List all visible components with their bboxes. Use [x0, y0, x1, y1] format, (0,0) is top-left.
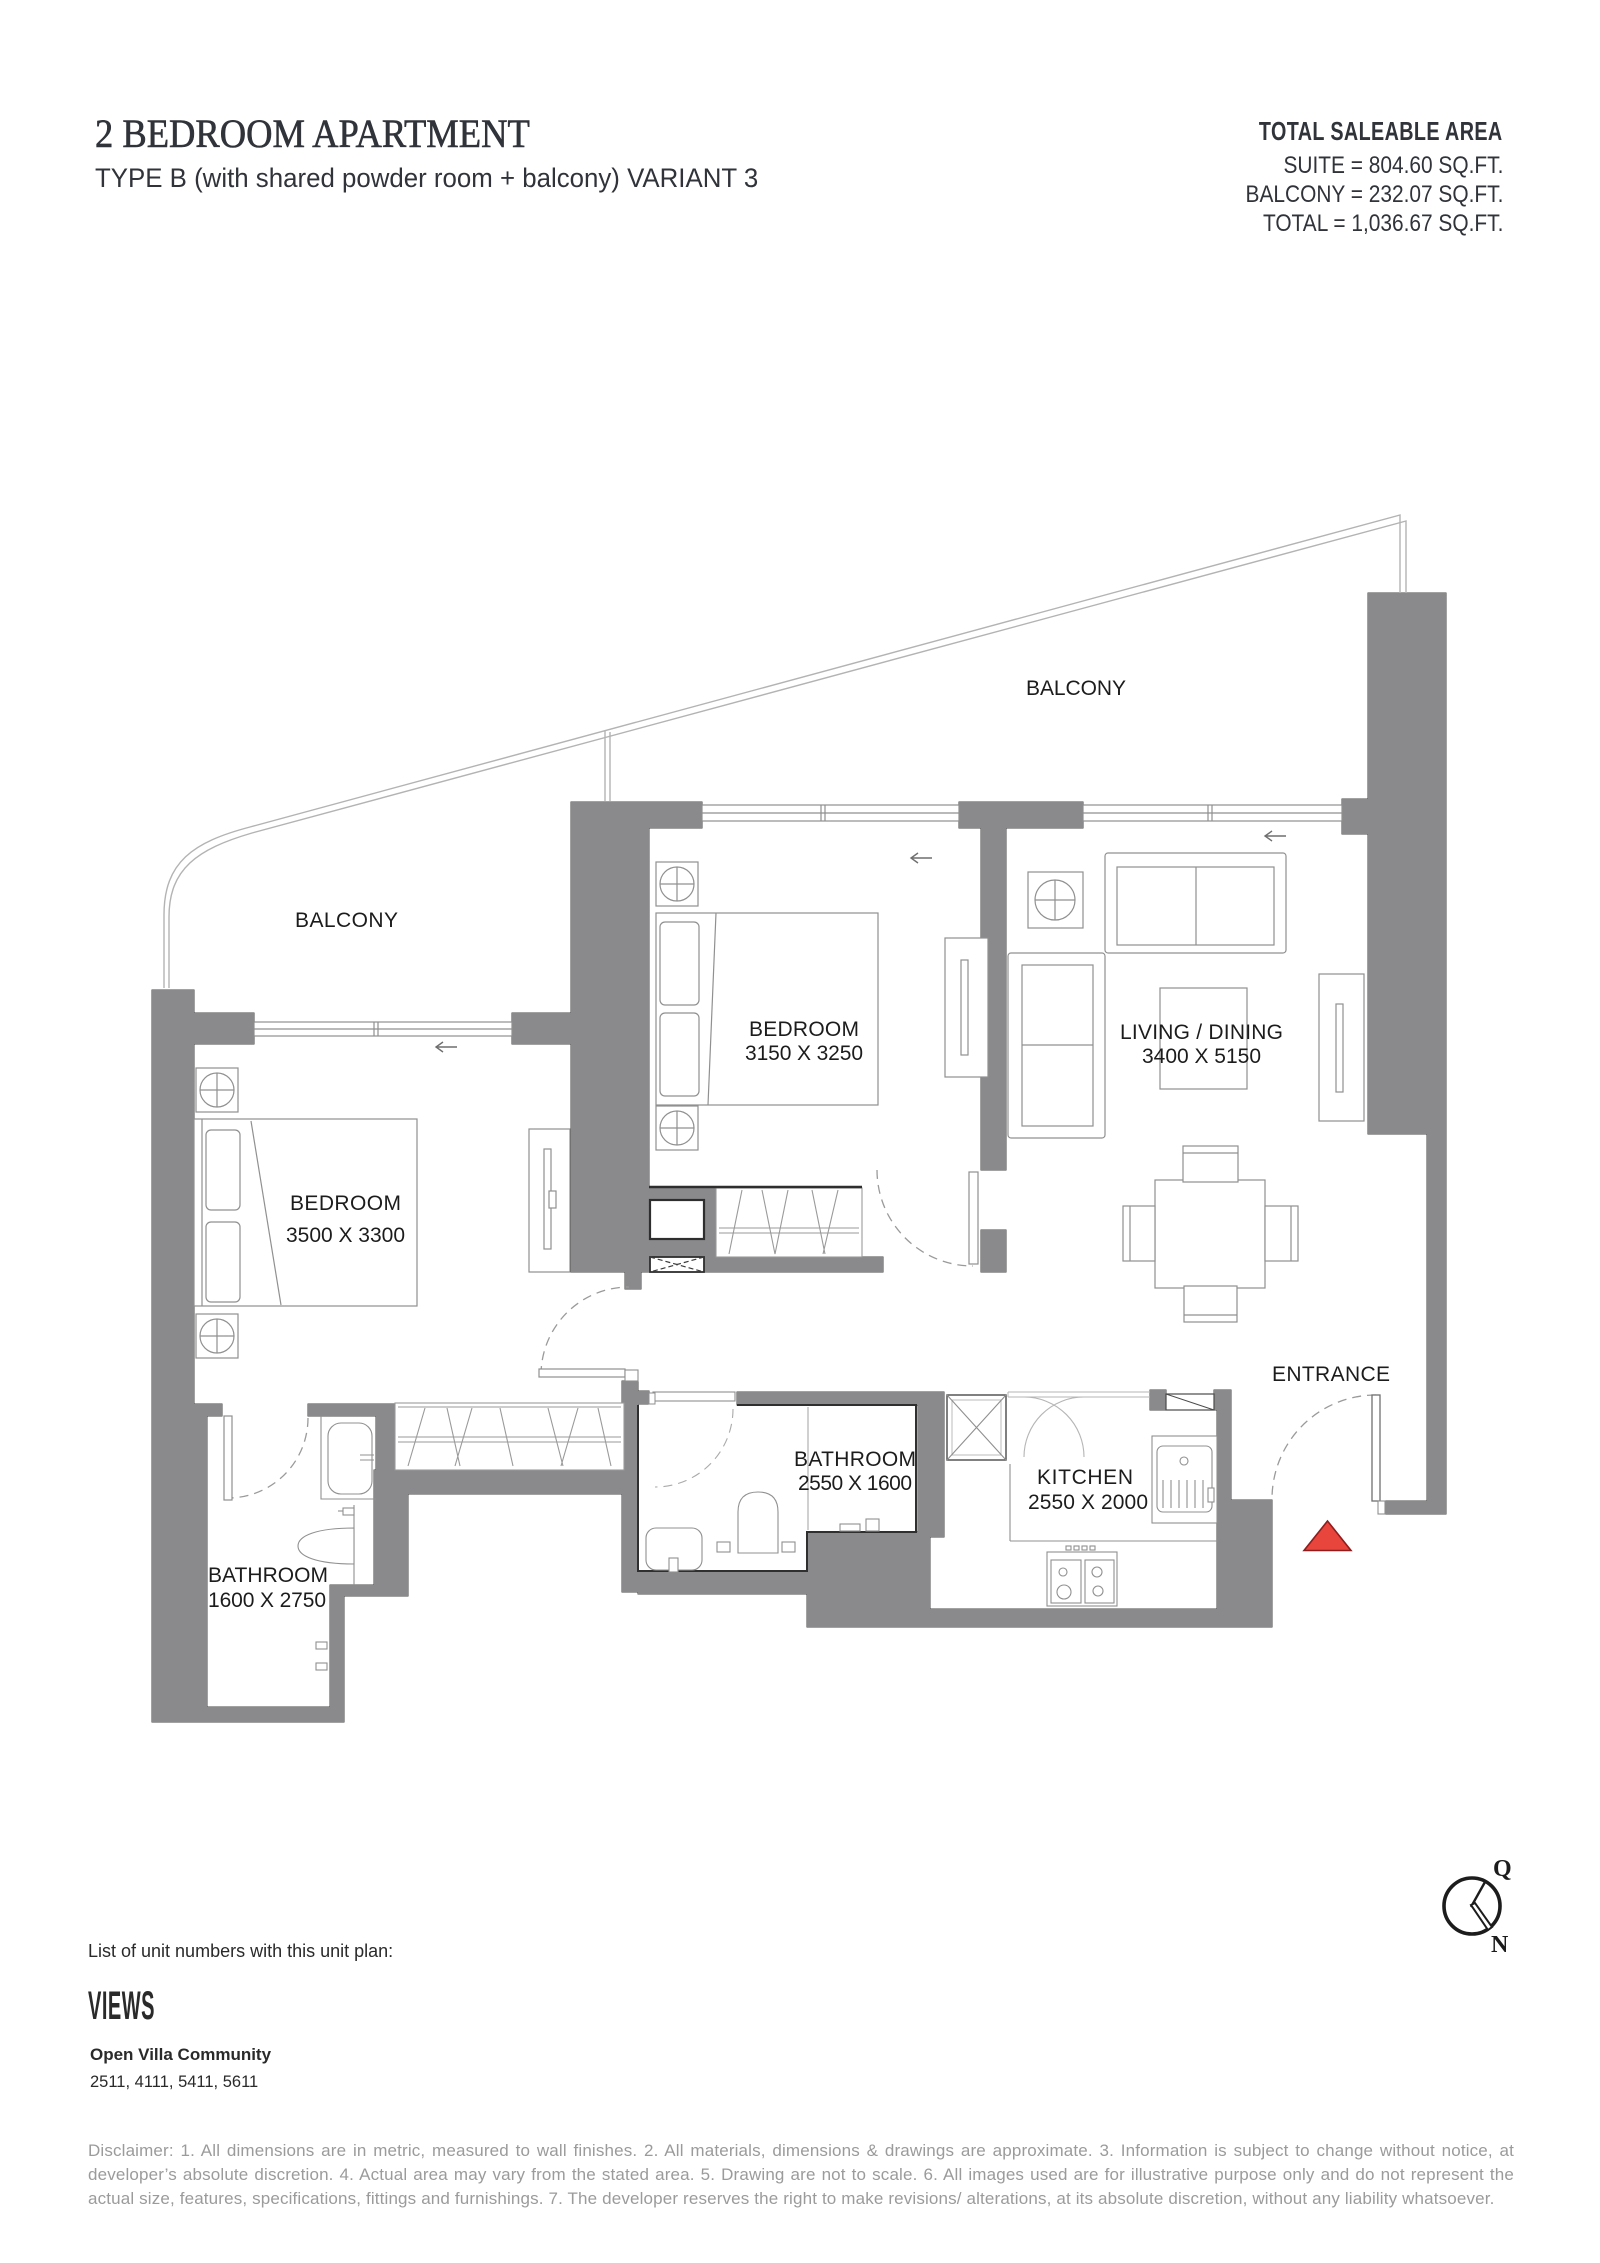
- svg-text:N: N: [1491, 1932, 1509, 1958]
- svg-text:BEDROOM: BEDROOM: [290, 1192, 401, 1215]
- svg-text:2550 X 1600: 2550 X 1600: [798, 1472, 912, 1495]
- svg-text:ENTRANCE: ENTRANCE: [1272, 1363, 1390, 1386]
- svg-text:LIVING / DINING: LIVING / DINING: [1120, 1021, 1283, 1044]
- svg-text:BALCONY: BALCONY: [295, 909, 398, 932]
- svg-text:3500 X 3300: 3500 X 3300: [286, 1224, 405, 1247]
- svg-text:BALCONY: BALCONY: [1026, 677, 1126, 700]
- svg-text:Q: Q: [1493, 1856, 1512, 1882]
- svg-text:3400 X 5150: 3400 X 5150: [1142, 1045, 1261, 1068]
- svg-text:2550 X 2000: 2550 X 2000: [1028, 1491, 1148, 1514]
- svg-text:3150 X 3250: 3150 X 3250: [745, 1042, 863, 1065]
- svg-text:KITCHEN: KITCHEN: [1037, 1466, 1133, 1489]
- svg-text:1600 X 2750: 1600 X 2750: [208, 1589, 326, 1612]
- svg-text:BATHROOM: BATHROOM: [794, 1448, 916, 1471]
- svg-text:BEDROOM: BEDROOM: [749, 1018, 859, 1041]
- svg-text:BATHROOM: BATHROOM: [208, 1564, 328, 1587]
